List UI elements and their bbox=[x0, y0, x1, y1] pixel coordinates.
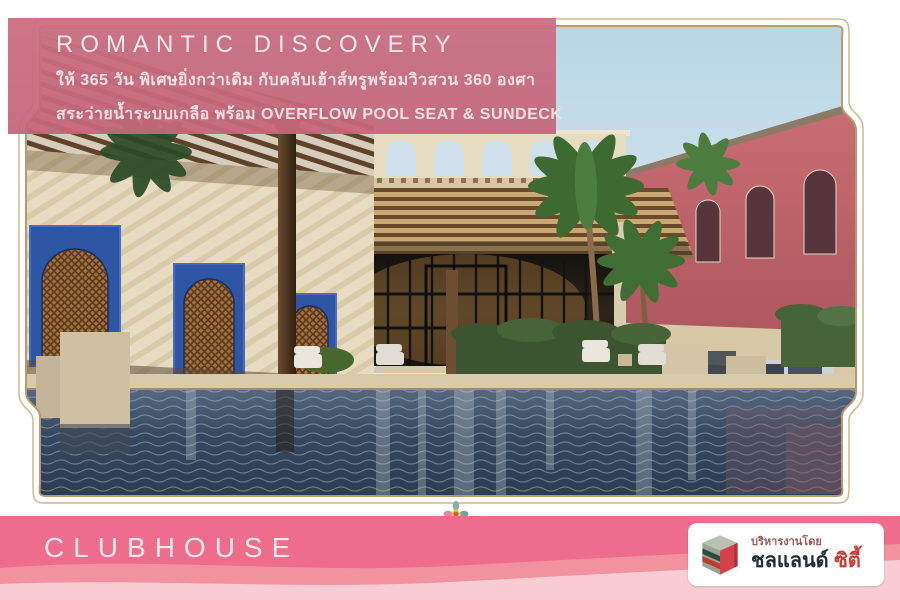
banner-line2: สระว่ายน้ำระบบเกลือ พร้อม OVERFLOW POOL … bbox=[56, 102, 536, 127]
footer-bar: CLUBHOUSE บริหารงานโดย ชลแลนด์ ซิตี้ bbox=[0, 516, 900, 600]
logo-text: บริหารงานโดย ชลแลนด์ ซิตี้ bbox=[751, 537, 861, 572]
pool-deck bbox=[26, 374, 856, 390]
logo-brand-secondary: ซิตี้ bbox=[834, 550, 861, 572]
logo-brand-primary: ชลแลนด์ bbox=[751, 550, 829, 572]
cube-logo-icon bbox=[698, 533, 742, 577]
footer-title: CLUBHOUSE bbox=[44, 532, 299, 564]
promo-banner: ROMANTIC DISCOVERY ให้ 365 วัน พิเศษยิ่ง… bbox=[8, 18, 556, 134]
blue-arched-window bbox=[174, 264, 244, 376]
banner-title: ROMANTIC DISCOVERY bbox=[56, 31, 536, 59]
overflow-pool bbox=[26, 390, 856, 496]
promo-poster: ROMANTIC DISCOVERY ให้ 365 วัน พิเศษยิ่ง… bbox=[0, 0, 900, 600]
logo-brand: ชลแลนด์ ซิตี้ bbox=[751, 551, 861, 572]
logo-tagline: บริหารงานโดย bbox=[751, 537, 861, 549]
banner-line1: ให้ 365 วัน พิเศษยิ่งกว่าเดิม กับคลับเฮ้… bbox=[56, 68, 536, 93]
side-table bbox=[618, 354, 632, 366]
developer-logo: บริหารงานโดย ชลแลนด์ ซิตี้ bbox=[688, 523, 884, 586]
